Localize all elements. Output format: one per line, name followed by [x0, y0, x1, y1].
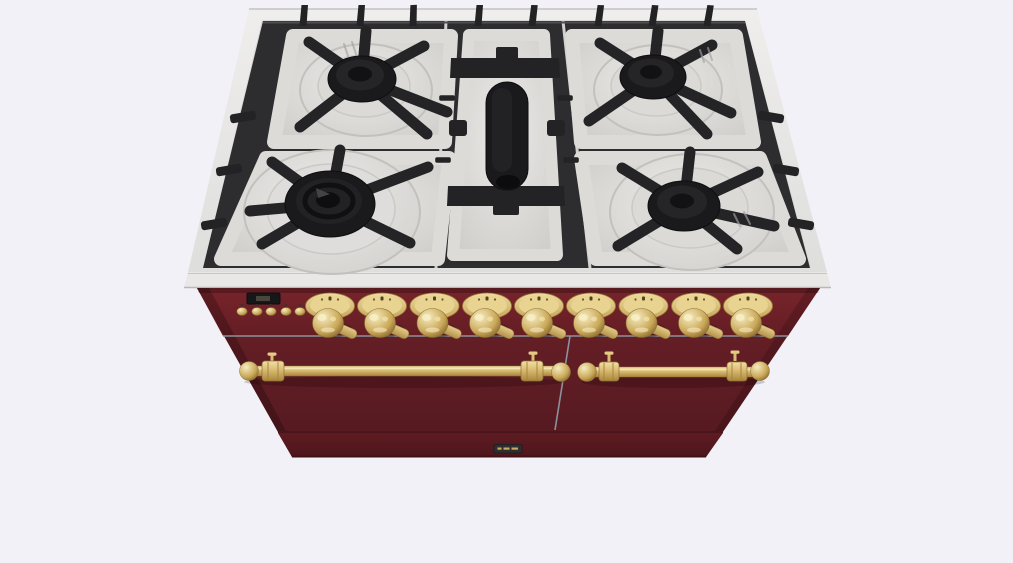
brand-nameplate	[494, 445, 522, 454]
burner-back-left	[328, 56, 396, 102]
product-render-canvas[interactable]	[0, 0, 1013, 563]
burner-back-right	[620, 55, 686, 99]
burner-front-left-wok	[285, 171, 375, 237]
burner-front-right	[648, 181, 720, 231]
cooktop-front-lip	[184, 272, 831, 288]
burner-center-oval	[486, 82, 528, 190]
burner-knobs	[306, 293, 777, 340]
cooktop	[184, 5, 831, 288]
clock-display	[247, 293, 280, 304]
